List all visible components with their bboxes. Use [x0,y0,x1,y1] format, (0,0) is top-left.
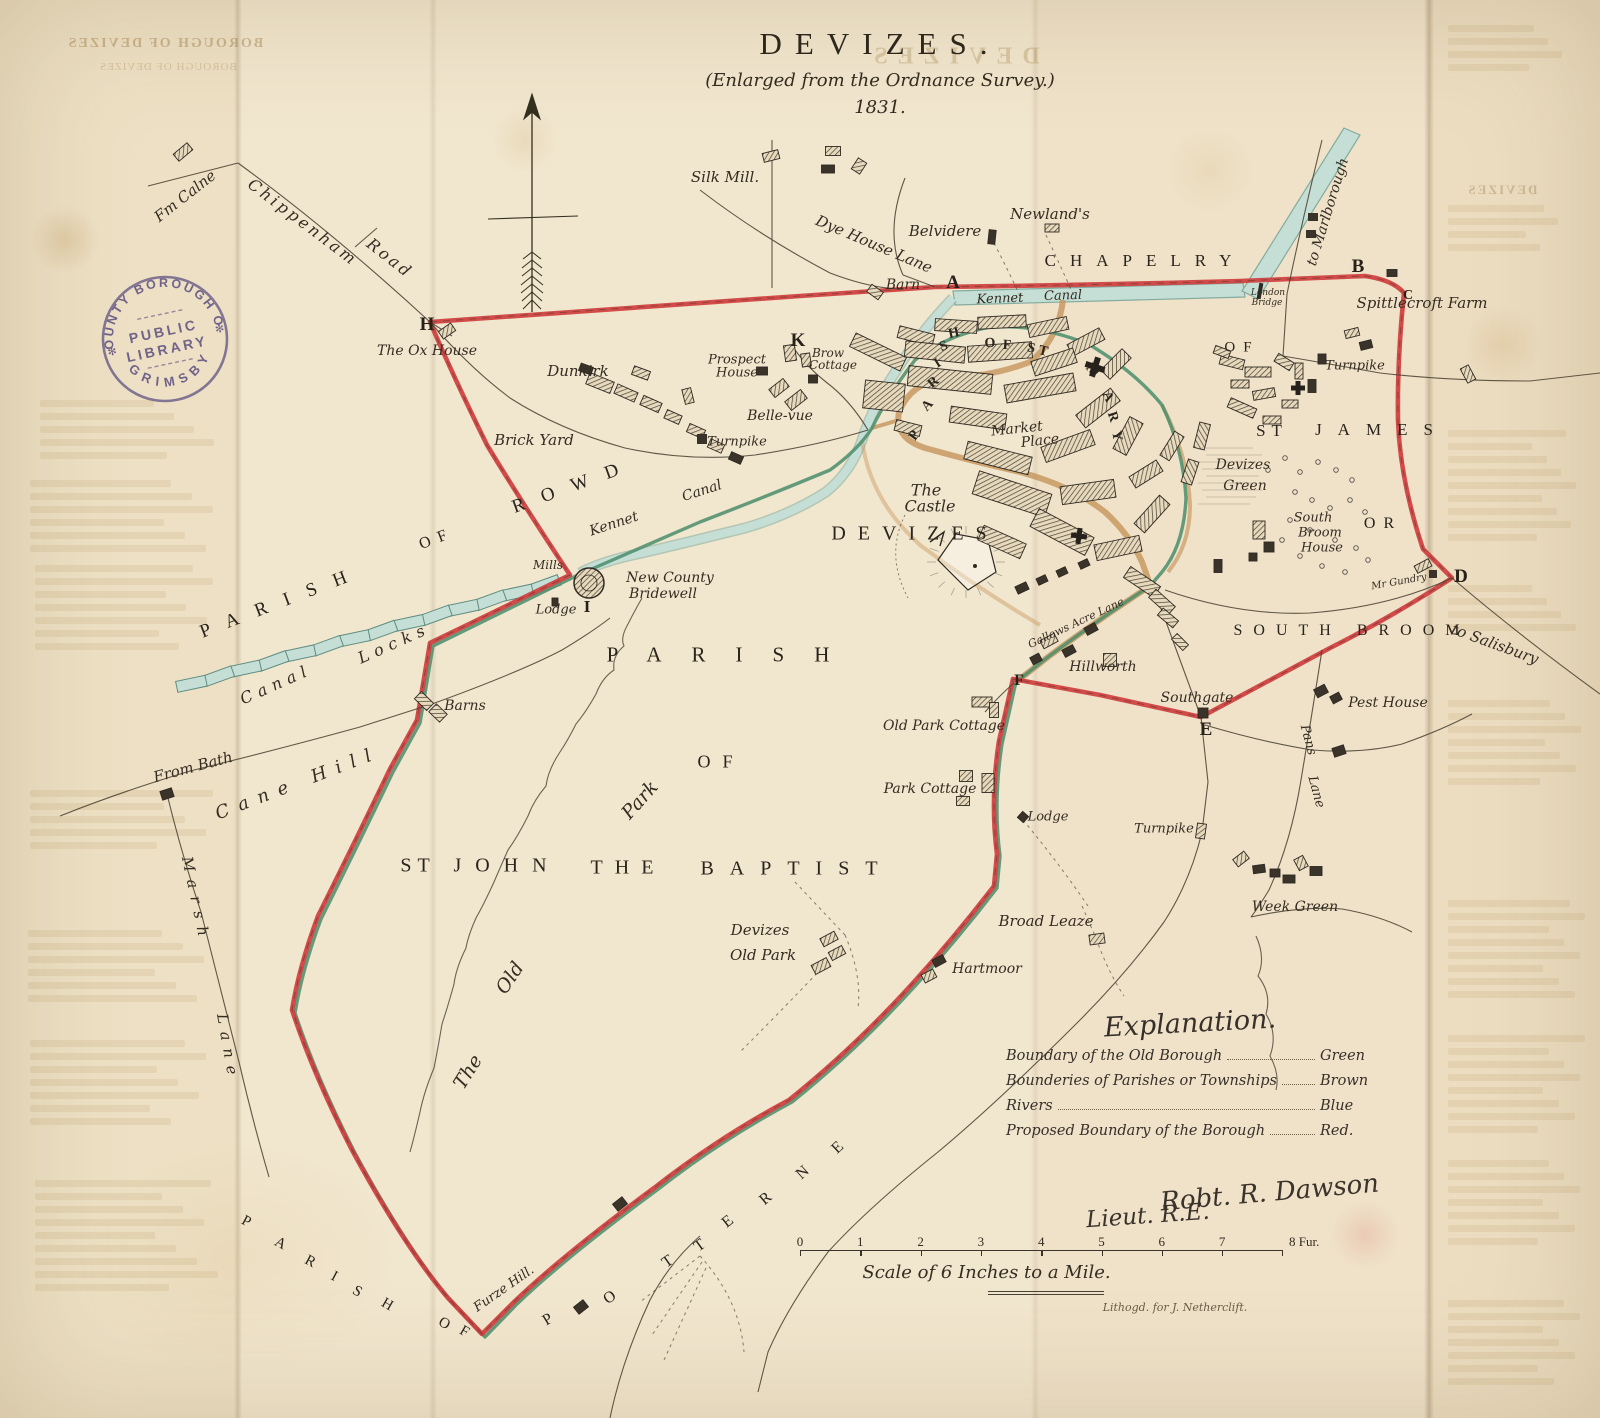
map-label-a-83: A [946,272,960,294]
map-label-canal-11: Canal [1044,288,1082,304]
legend-label: Bounderies of Parishes or Townships [1006,1073,1277,1089]
map-label-m-102: M [1082,361,1103,382]
map-label-chapelry-8: CHAPELRY [1045,251,1246,271]
map-label-castle-78: Castle [904,497,955,516]
map-label-p-106: P [539,1310,556,1330]
map-label-baptist-49: BAPTIST [700,858,893,881]
map-label-i-90: I [584,597,591,617]
map-label-james-18: JAMES [1315,420,1449,440]
map-label-of-29: OF [417,524,457,554]
scale-tick [1282,1250,1283,1256]
map-label-p-92: P [906,428,924,444]
map-label-lodge-59: Lodge [1028,810,1069,825]
scale-tick-label: 4 [1038,1234,1045,1250]
map-label-devizes-53: Devizes [731,921,790,939]
legend-leader [1282,1084,1315,1085]
map-label-f-88: F [1014,672,1024,690]
map-label-broom-73: Broom [1298,526,1342,541]
map-label-pest-house-64: Pest House [1348,695,1427,711]
map-label-b-84: B [1352,256,1365,278]
map-label-southgate-66: Southgate [1161,690,1234,706]
map-label-canal-33: Canal [237,660,315,709]
map-label-i-95: I [931,356,944,372]
legend-value: Blue [1320,1098,1374,1114]
map-label-t-101: T [1037,343,1050,361]
scale-tick-label: 0 [797,1234,804,1250]
map-label-d-86: D [1454,566,1468,588]
map-label-st-17: ST [1256,421,1288,441]
map-label-of-16: OF [1224,340,1259,357]
map-label-r-111: R [756,1189,776,1210]
map-label-cane-hill-41: Cane Hill [212,742,383,824]
scale-end-label: 8 Fur. [1289,1234,1319,1250]
legend-value: Red. [1320,1123,1374,1139]
scale-tick-label: 3 [978,1234,985,1250]
map-label-fm-calne-0: Fm Calne [151,166,220,225]
map-label-john-47: JOHN [453,855,560,878]
map-label-to-salisbury-69: to Salisbury [1449,620,1541,668]
map-label-dunkirk-20: Dunkirk [547,362,609,380]
map-label-from-bath-40: From Bath [151,748,234,786]
map-subtitle: (Enlarged from the Ordnance Survey.) [660,70,1100,91]
map-label-e-87: E [1200,719,1213,741]
map-label-marsh-42: Marsh [178,855,214,946]
legend-row-parishes: Bounderies of Parishes or Townships Brow… [1006,1073,1374,1089]
map-label-south-broom-68: SOUTH BROOM [1233,622,1470,640]
map-label-devizes-79: DEVIZES [831,523,998,546]
map-label-lane-63: Lane [1305,774,1328,809]
scale-tick-label: 7 [1219,1234,1226,1250]
map-label-of-45: OF [697,752,744,773]
map-label-s-118: S [349,1283,365,1302]
map-label-furze-hill--82: Furze Hill. [471,1263,537,1316]
scale-tick [1102,1250,1103,1256]
map-label-belle-vue-26: Belle-vue [747,408,813,424]
legend-leader [1227,1059,1315,1060]
map-label-e-110: E [719,1212,738,1232]
map-label-r-104: R [1103,410,1121,425]
map-label-chippenham-1: Chippenham [244,174,362,269]
map-label-new-county-36: New County [626,570,714,586]
map-label-newland-s-6: Newland's [1010,205,1090,223]
scale-rule [988,1291,1104,1295]
map-label-parish-28: PARISH [197,561,367,644]
legend-label: Boundary of the Old Borough [1006,1048,1222,1064]
map-label-s-96: S [937,338,950,356]
scale-tick [1162,1250,1163,1256]
map-label-or-75: OR [1364,515,1402,533]
scale-caption: Scale of 6 Inches to a Mile. [745,1262,1228,1283]
map-label-n-112: N [793,1162,814,1183]
map-label-cottage-25: Cottage [809,358,857,372]
map-label-kennet-31: Kennet [588,509,641,540]
map-label-a-103: A [1098,389,1117,405]
map-label-turnpike-27: Turnpike [707,435,767,450]
map-label-house-74: House [1301,541,1343,556]
map-label-canal-32: Canal [680,477,724,505]
scale-tick-label: 2 [917,1234,924,1250]
map-label-h-97: H [947,325,961,343]
legend-value: Brown [1320,1073,1374,1089]
map-label-hartmoor-55: Hartmoor [952,961,1022,977]
map-label-place-81: Place [1020,431,1060,451]
map-label-p-114: P [238,1213,253,1232]
map-label-the-ox-house-19: The Ox House [377,343,477,359]
map-label-t-109: T [691,1236,709,1256]
map-label-st-46: ST [400,855,435,878]
map-year: 1831. [660,97,1100,118]
legend-leader [1058,1109,1315,1110]
map-label-c-85: C [1403,288,1413,304]
map-label-o-120: O [435,1314,453,1334]
map-label-a-93: A [919,397,938,415]
scale-tick-label: 1 [857,1234,864,1250]
map-label-i-117: I [328,1268,340,1285]
map-label-e-113: E [828,1138,847,1158]
map-label-barn-7: Barn [886,277,920,293]
map-label-t-108: T [659,1252,677,1272]
map-label-lane-43: Lane [213,1012,243,1084]
explanation-legend: Explanation. Boundary of the Old Borough… [1006,1008,1374,1139]
map-label-bridge-13: Bridge [1252,298,1283,308]
lithographer-imprint: Lithogd. for J. Netherclift. [1060,1301,1290,1314]
map-labels: Fm CalneChippenhamRoadSilk Mill.Dye Hous… [0,0,1600,1418]
map-label-locks-34: Locks [355,619,433,668]
map-label-mills-35: Mills [533,558,563,572]
map-label-turnpike-15: Turnpike [1325,359,1385,374]
map-label-h-119: H [378,1295,396,1315]
map-label-london-12: London [1251,288,1285,298]
map-label-green-71: Green [1223,478,1266,494]
legend-value: Green [1320,1048,1374,1064]
map-title: DEVIZES. [660,26,1100,62]
map-label-to-marlborough-9: to Marlborough [1304,156,1352,268]
map-label-rowd-30: ROWD [509,453,639,518]
map-label-brick-yard-21: Brick Yard [494,431,574,449]
map-label-belvidere-5: Belvidere [909,222,982,240]
map-label-devizes-70: Devizes [1216,457,1271,473]
scale-tick [860,1250,861,1256]
legend-row-rivers: Rivers Blue [1006,1098,1374,1114]
scale-tick-label: 5 [1098,1234,1105,1250]
scale-tick-label: 6 [1159,1234,1166,1250]
map-label-road-2: Road [363,234,417,282]
library-stamp: COUNTY BOROUGH OF GRIMSBY PUBLIC LIBRARY… [52,226,277,451]
scale-tick [921,1250,922,1256]
map-label-s-100: S [1026,340,1037,357]
map-label-barns-39: Barns [444,698,486,714]
map-label-h-89: H [420,314,435,336]
map-label-south-72: South [1294,511,1333,526]
map-label-park-52: Park [617,776,663,823]
scale-tick [1041,1250,1042,1256]
map-label-old-park-cottage-57: Old Park Cottage [883,718,1005,734]
scale-tick [800,1250,801,1256]
legend-row-proposed-boundary: Proposed Boundary of the Borough Red. [1006,1123,1374,1139]
legend-label: Rivers [1006,1098,1053,1114]
map-label-lodge-38: Lodge [536,603,577,618]
map-label-week-green-61: Week Green [1252,899,1338,915]
map-label-o-107: O [600,1287,620,1308]
legend-label: Proposed Boundary of the Borough [1006,1123,1265,1139]
map-label-park-cottage-58: Park Cottage [884,781,977,797]
map-label-spittlecroft-farm-14: Spittlecroft Farm [1356,294,1487,312]
map-label-the-48: THE [591,857,666,880]
map-label-bridewell-37: Bridewell [629,586,697,602]
map-label-o-98: O [984,336,995,352]
map-label-r-116: R [302,1252,319,1272]
map-label-k-91: K [791,330,806,352]
title-block: DEVIZES. (Enlarged from the Ordnance Sur… [660,26,1100,118]
map-label-f-99: F [1002,338,1012,355]
legend-row-old-borough: Boundary of the Old Borough Green [1006,1048,1374,1064]
legend-leader [1270,1134,1315,1135]
map-label-broad-leaze-56: Broad Leaze [998,912,1093,930]
map-label-gallows-acre-lane-67: Gallows Acre Lane [1026,595,1126,651]
scale-tick [1222,1250,1223,1256]
scale-tick [981,1250,982,1256]
map-page: BOROUGH OF DEVIZES BOROUGH OF DEVIZES DE… [0,0,1600,1418]
map-label-pans-62: Pans [1297,723,1320,757]
map-label-silk-mill--3: Silk Mill. [691,168,759,186]
map-label-r-94: R [925,374,943,393]
map-label-old-51: Old [491,958,528,998]
scale-bar: 01234567 8 Fur. [800,1236,1283,1258]
map-label-the-50: The [449,1051,487,1093]
map-label-kennet-10: Kennet [976,291,1023,308]
map-label-parish-44: PARISH [607,643,860,668]
map-label-mr-gundry-76: Mr Gundry [1371,572,1428,593]
map-label-f-121: F [456,1323,472,1342]
map-label-y-105: Y [1107,430,1125,443]
map-label-turnpike-60: Turnpike [1134,822,1194,837]
map-label-hillworth-65: Hillworth [1069,659,1136,675]
map-label-house-23: House [716,366,758,381]
map-label-old-park-54: Old Park [730,946,796,964]
map-label-a-115: A [271,1234,289,1254]
